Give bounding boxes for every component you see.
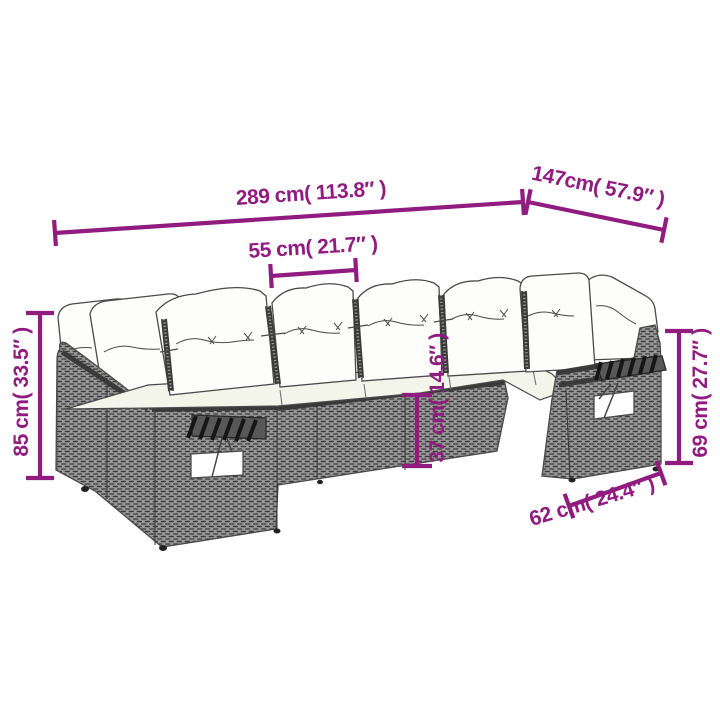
dimension-label-arm-back-height: 69 cm( 27.7″ ) [689,328,713,457]
dimension-label-seat-height: 37 cm( 14.6″ ) [426,333,450,462]
back-cushion-right-inner [520,273,595,372]
dimension-label-total-height: 85 cm( 33.5″ ) [10,327,34,456]
product-dimension-diagram: 289 cm( 113.8″ ) 147cm( 57.9″ ) 55 cm( 2… [0,0,720,720]
back-cushion-4 [444,278,528,377]
back-cushion-1 [156,288,274,395]
sofa-illustration [0,0,720,720]
back-cushion-2 [272,284,356,387]
dimension-line-seat-width [270,258,356,288]
